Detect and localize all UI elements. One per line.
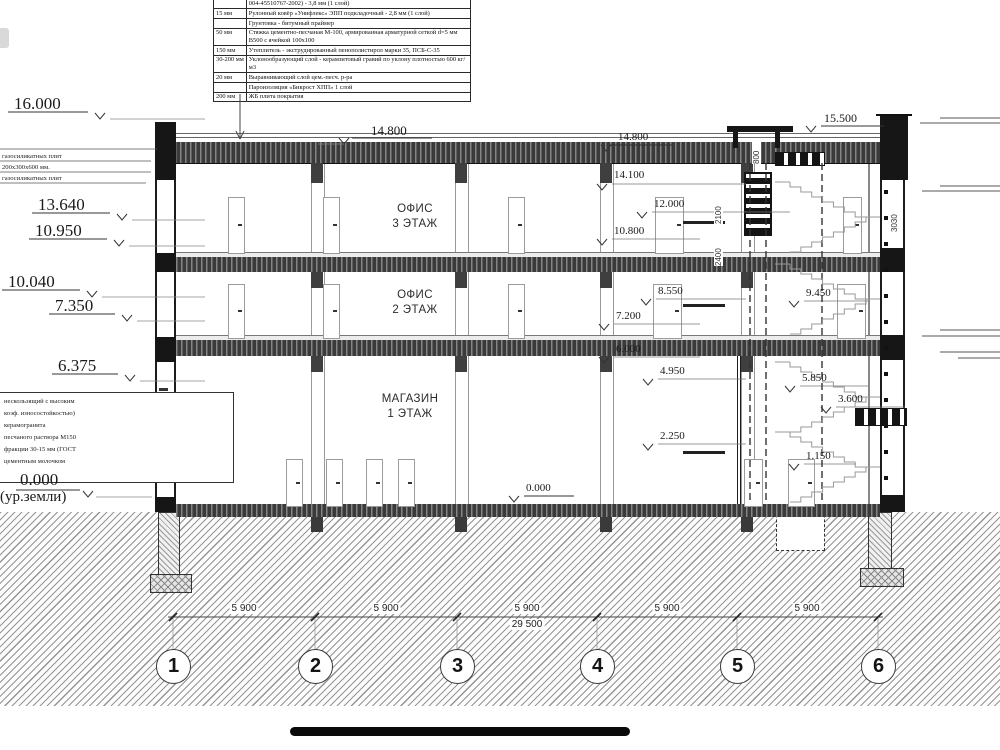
column-joint [455, 163, 467, 183]
level-7200: 7.200 [616, 310, 641, 322]
column-joint [741, 272, 753, 288]
door-handle [238, 310, 242, 312]
column-joint [455, 272, 467, 288]
door-leaf [228, 197, 245, 254]
door-handle [296, 482, 300, 484]
spec-row: Грунтовка - битумный праймер [214, 19, 471, 29]
door-handle [756, 482, 760, 484]
note-lower-3: керамогранита [4, 420, 46, 432]
stair-partition-wall [737, 356, 741, 504]
wall-tie [884, 190, 888, 194]
column-joint [311, 272, 323, 288]
dim-span-3: 5 900 [512, 603, 541, 614]
spec-thickness: 15 мм [214, 9, 247, 19]
spec-thickness: 200 мм [214, 92, 247, 102]
room-shop-line2: 1 ЭТАЖ [360, 407, 460, 422]
axis-1-label: 1 [168, 655, 179, 678]
level-14800-right: 14.800 [618, 131, 648, 143]
wall-tie [884, 450, 888, 454]
ground-slab [176, 504, 880, 517]
axis-bubble-4: 4 [580, 649, 615, 684]
spec-thickness [214, 19, 247, 29]
door-handle [677, 224, 681, 226]
axis-bubble-3: 3 [440, 649, 475, 684]
note-upper-3: газосиликатных плит [2, 173, 62, 185]
door-leaf [286, 459, 303, 507]
note-lower-2: коэф. износостойкостью) [4, 408, 75, 420]
dim-span-1: 5 900 [229, 603, 258, 614]
room-office2-line1: ОФИС [365, 288, 465, 303]
left-wall-base [155, 497, 176, 512]
left-wall-joint-3 [155, 253, 176, 272]
wall-tie [884, 346, 888, 350]
floor2-slab [166, 340, 893, 356]
left-wall-joint-2 [155, 337, 176, 362]
column-stub [741, 516, 753, 532]
lintel-8550 [683, 304, 725, 307]
spec-row: Пароизоляция «Бикрост ХПП» 1 слой [214, 83, 471, 93]
level-12000: 12.000 [654, 198, 684, 210]
column-joint [600, 163, 612, 183]
axis-4-label: 4 [592, 655, 603, 678]
right-parapet [880, 116, 908, 180]
room-label-office2: ОФИС 2 ЭТАЖ [365, 288, 465, 318]
column-joint [455, 356, 467, 372]
edge-tab [0, 28, 9, 48]
spec-row: 20 ммВыравнивающий слой цем.-песч. р-ра [214, 73, 471, 83]
column-joint [600, 356, 612, 372]
spec-description: Стяжка цементно-песчаная М-100, армирова… [246, 28, 470, 45]
level-0000-center: 0.000 [526, 482, 551, 494]
ground-hatch [0, 512, 1000, 706]
right-wall-base [880, 495, 905, 512]
column-joint [311, 356, 323, 372]
door-handle [675, 310, 679, 312]
roof-layer-line-2 [166, 137, 893, 138]
stair-roof-slab [775, 152, 825, 166]
note-lower-5: фракции 30-15 мм (ГОСТ [4, 444, 76, 456]
door-handle [336, 482, 340, 484]
level-5850: 5.850 [802, 372, 827, 384]
door-handle [238, 224, 242, 226]
axis-2-label: 2 [310, 655, 321, 678]
door-leaf [228, 284, 245, 339]
spec-row: 30-200 ммУклонообразующий слой - керамзи… [214, 55, 471, 72]
spec-thickness: 50 мм [214, 28, 247, 45]
level-15500: 15.500 [824, 111, 857, 126]
vdim-2100: 2100 [714, 188, 723, 224]
wall-tie [884, 398, 888, 402]
level-3600: 3.600 [838, 393, 863, 405]
left-parapet [155, 122, 176, 180]
spec-thickness: 20 мм [214, 73, 247, 83]
level-6000: 6.000 [616, 343, 641, 355]
entrance-canopy [855, 408, 907, 426]
axis-6-label: 6 [873, 655, 884, 678]
wall-tie [884, 294, 888, 298]
column-joint [311, 163, 323, 183]
door-leaf [508, 284, 525, 339]
level-10800: 10.800 [614, 225, 644, 237]
level-7350: 7.350 [55, 296, 93, 316]
spec-thickness: 30-200 мм [214, 55, 247, 72]
axis-bubble-2: 2 [298, 649, 333, 684]
stair-shaft-wall [868, 163, 870, 504]
axis-bubble-6: 6 [861, 649, 896, 684]
level-14100: 14.100 [614, 169, 644, 181]
note-upper-1: газосиликатных плит [2, 151, 62, 163]
spec-description: Рулонный ковёр «Унифлекс» ЭПП подкладочн… [246, 9, 470, 19]
door-handle [518, 224, 522, 226]
door-leaf [323, 284, 340, 339]
wall-tie [884, 372, 888, 376]
door-handle [408, 482, 412, 484]
spec-description: ЖБ плита покрытия [246, 92, 470, 102]
spec-row: 50 ммСтяжка цементно-песчаная М-100, арм… [214, 28, 471, 45]
vdim-3030: 3030 [890, 192, 899, 232]
spec-description: Грунтовка - битумный праймер [246, 19, 470, 29]
level-10950: 10.950 [35, 221, 82, 241]
level-4950: 4.950 [660, 365, 685, 377]
room-office3-line2: 3 ЭТАЖ [365, 217, 465, 232]
left-foundation-wall [158, 512, 180, 576]
column-joint [741, 356, 753, 372]
vdim-800: 800 [752, 138, 761, 164]
note-lower-4: песчаного раствора М150 [4, 432, 76, 444]
level-14800-center: 14.800 [371, 123, 407, 139]
door-handle [376, 482, 380, 484]
door-leaf [366, 459, 383, 507]
dim-span-5: 5 900 [792, 603, 821, 614]
column-stub [600, 516, 612, 532]
roof-railing-post-1 [733, 132, 738, 148]
section-drawing-canvas: 5 ммРулонный материал «Унифлекс» ТКП с к… [0, 0, 1000, 750]
room-office2-line2: 2 ЭТАЖ [365, 303, 465, 318]
elevator-cab [744, 172, 772, 236]
door-handle [859, 310, 863, 312]
column-stub [311, 516, 323, 532]
home-indicator-bar [290, 727, 630, 736]
note-lower-1: нескользящий с высоким [4, 396, 75, 408]
spec-description: Уклонообразующий слой - керамзитовый гра… [246, 55, 470, 72]
left-footing [150, 574, 192, 593]
level-1150: 1.150 [806, 450, 831, 462]
spec-row: 5 ммРулонный материал «Унифлекс» ТКП с к… [214, 0, 471, 9]
spec-description: Рулонный материал «Унифлекс» ТКП с крупн… [246, 0, 470, 9]
dim-span-2: 5 900 [371, 603, 400, 614]
floor3-slab [166, 257, 893, 272]
level-9450: 9.450 [806, 287, 831, 299]
column-stub [455, 516, 467, 532]
column-joint [600, 272, 612, 288]
spec-description: Выравнивающий слой цем.-песч. р-ра [246, 73, 470, 83]
door-leaf [326, 459, 343, 507]
note-upper-2: 200х300х600 мм. [2, 162, 50, 174]
level-8550: 8.550 [658, 285, 683, 297]
axis-3-label: 3 [452, 655, 463, 678]
spec-thickness: 150 мм [214, 46, 247, 56]
axis-5-label: 5 [732, 655, 743, 678]
spec-row: 150 ммУтеплитель - экструдированный пено… [214, 46, 471, 56]
door-leaf [788, 459, 815, 507]
spec-description: Пароизоляция «Бикрост ХПП» 1 слой [246, 83, 470, 93]
spec-description: Утеплитель - экструдированный пенополист… [246, 46, 470, 56]
wall-tie [884, 320, 888, 324]
right-foundation-wall [868, 512, 892, 570]
lintel-2250 [683, 451, 725, 454]
spec-row: 200 ммЖБ плита покрытия [214, 92, 471, 102]
door-handle [333, 224, 337, 226]
door-leaf [398, 459, 415, 507]
wall-tie [884, 242, 888, 246]
ground-level-note: (ур.земли) [0, 489, 66, 506]
wall-tie [884, 268, 888, 272]
note-lower-6: цементным молочком [4, 456, 65, 468]
column-axis-4 [600, 163, 614, 504]
level-10040: 10.040 [8, 272, 55, 292]
transom-mark [159, 388, 168, 391]
level-13640: 13.640 [38, 195, 85, 215]
level-6375: 6.375 [58, 356, 96, 376]
wall-tie [884, 476, 888, 480]
room-shop-line1: МАГАЗИН [360, 392, 460, 407]
door-leaf [508, 197, 525, 254]
spec-thickness: 5 мм [214, 0, 247, 9]
room-label-shop: МАГАЗИН 1 ЭТАЖ [360, 392, 460, 422]
room-label-office3: ОФИС 3 ЭТАЖ [365, 202, 465, 232]
roof-spec-table: 5 ммРулонный материал «Унифлекс» ТКП с к… [213, 0, 471, 102]
spec-thickness [214, 83, 247, 93]
level-16000: 16.000 [14, 94, 61, 114]
roof-railing-post-2 [775, 132, 780, 148]
room-office3-line1: ОФИС [365, 202, 465, 217]
door-handle [855, 224, 859, 226]
spec-row: 15 ммРулонный ковёр «Унифлекс» ЭПП подкл… [214, 9, 471, 19]
door-handle [518, 310, 522, 312]
door-handle [808, 482, 812, 484]
roof-spec-rows: 5 ммРулонный материал «Унифлекс» ТКП с к… [214, 0, 471, 102]
dim-total: 29 500 [510, 619, 545, 630]
level-0000-left: 0.000 [20, 470, 58, 490]
dim-span-4: 5 900 [652, 603, 681, 614]
door-handle [333, 310, 337, 312]
door-leaf [843, 197, 862, 254]
door-leaf [744, 459, 763, 507]
axis-bubble-1: 1 [156, 649, 191, 684]
door-leaf [323, 197, 340, 254]
vdim-2400: 2400 [714, 230, 723, 266]
axis-bubble-5: 5 [720, 649, 755, 684]
wall-tie [884, 216, 888, 220]
right-footing [860, 568, 904, 587]
level-2250: 2.250 [660, 430, 685, 442]
door-leaf [837, 284, 866, 339]
